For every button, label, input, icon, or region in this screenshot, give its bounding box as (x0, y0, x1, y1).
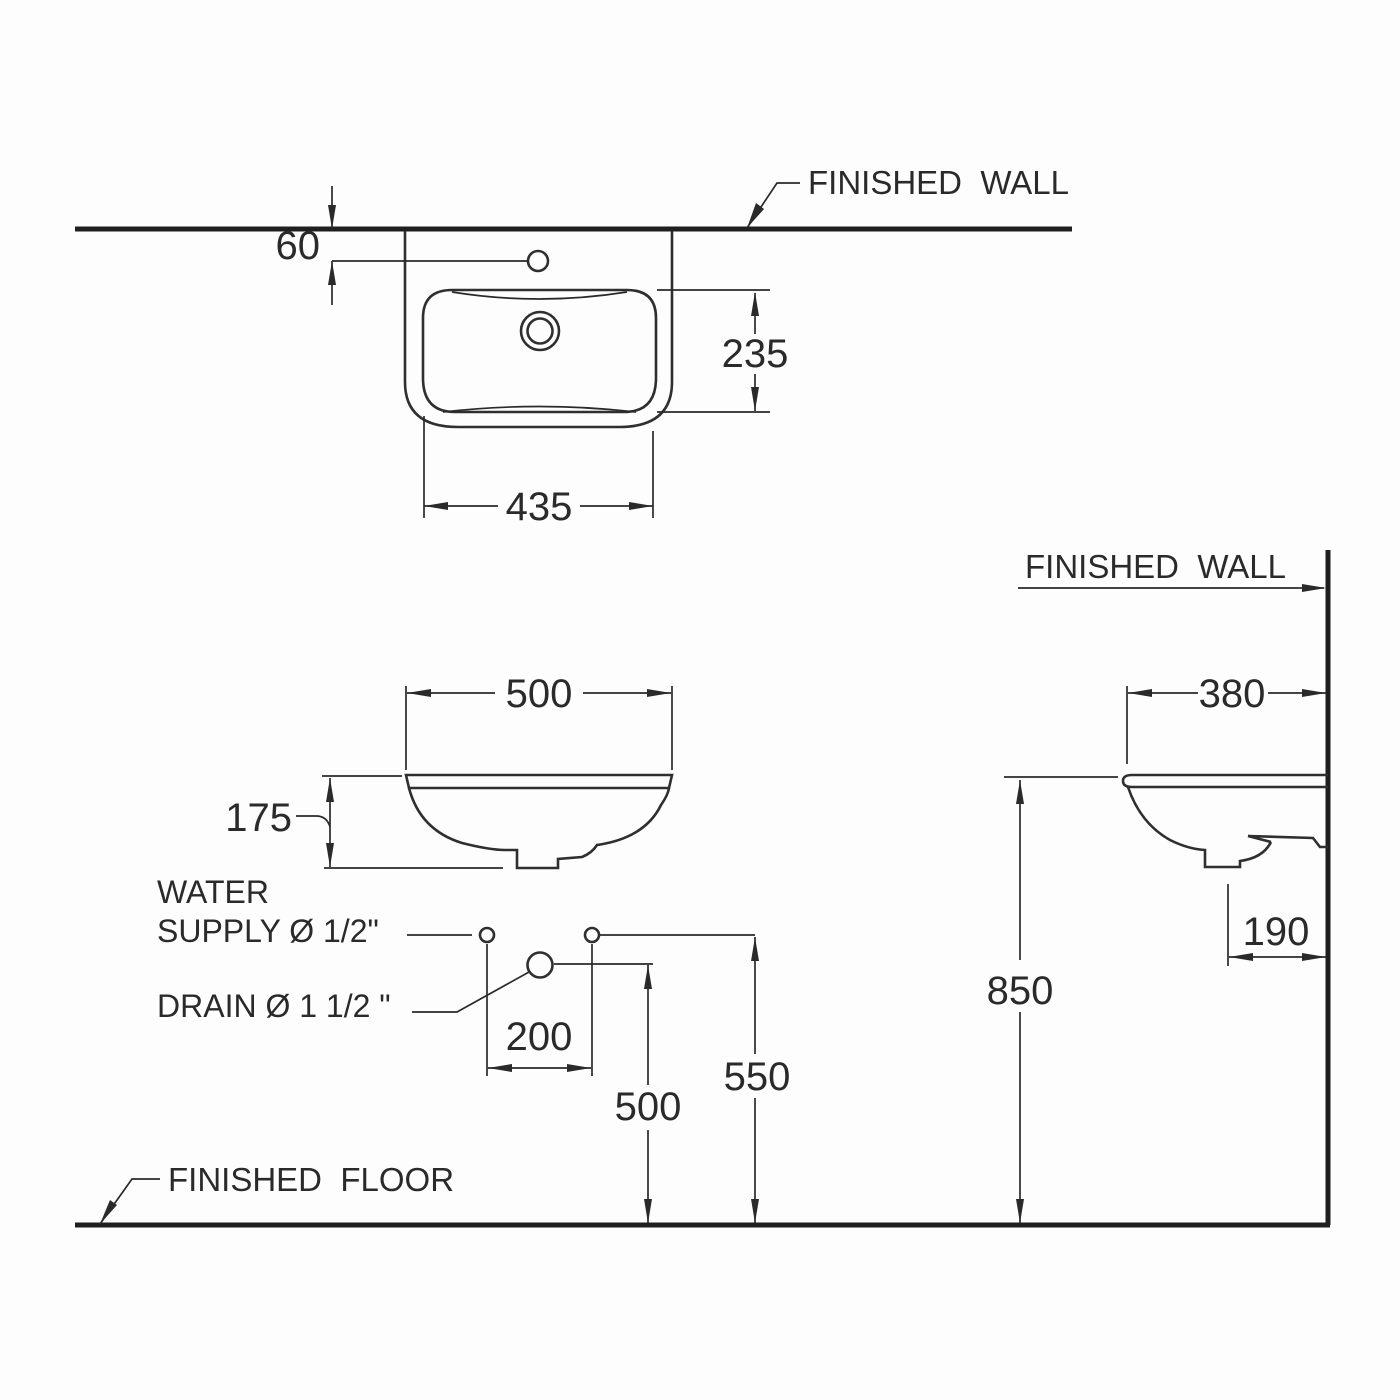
dim-190-arrow-left (1229, 953, 1253, 961)
dim-200-arrow-right (567, 1064, 591, 1072)
drain-hole-inner (528, 319, 553, 344)
finished-wall-top-leader (747, 183, 800, 228)
dim-500v-arrow-down (644, 1199, 652, 1223)
dim-435-text: 435 (506, 485, 573, 529)
dim-190-text: 190 (1243, 910, 1310, 954)
dim-500-text: 500 (506, 672, 573, 716)
dim-435-arrow-left (424, 502, 448, 510)
dim-235-arrow-down (751, 387, 759, 411)
dim-175-extensions (322, 776, 503, 868)
dim-500v-text: 500 (615, 1085, 682, 1129)
dim-850-arrow-down (1016, 1199, 1024, 1223)
basin-side-rim (1123, 775, 1328, 787)
dim-500-arrow-left (407, 689, 431, 697)
dim-550-arrow-down (751, 1199, 759, 1223)
dim-380-text: 380 (1199, 672, 1266, 716)
installation-diagram: FINISHED WALL 60 235 435 (0, 0, 1400, 1400)
supply-point-right (585, 928, 599, 942)
dim-200-arrow-left (488, 1064, 512, 1072)
dim-550-arrow-up (751, 937, 759, 961)
basin-plan-rim-arc-top (452, 292, 627, 299)
dim-850-arrow-up (1016, 780, 1024, 804)
finished-wall-side-label: FINISHED WALL (1025, 548, 1286, 585)
finished-wall-side-arrow (1302, 584, 1326, 592)
finished-floor-leader (100, 1179, 160, 1224)
dim-500v-arrow-up (644, 965, 652, 989)
dim-380-arrow-right (1302, 689, 1326, 697)
dim-550-text: 550 (724, 1055, 791, 1099)
drain-label: DRAIN Ø 1 1/2 " (157, 988, 391, 1024)
side-view: FINISHED WALL 380 850 190 (987, 548, 1328, 1225)
dim-60-arrow-down (328, 205, 336, 229)
dim-235-arrow-up (751, 292, 759, 316)
basin-front-rim (406, 775, 672, 788)
dim-200-text: 200 (506, 1015, 573, 1059)
dim-850-text: 850 (987, 969, 1054, 1013)
basin-side-outlet-shelf (1248, 836, 1328, 847)
dim-175-text: 175 (225, 796, 292, 840)
drain-point (528, 953, 553, 978)
water-supply-label-line2: SUPPLY Ø 1/2" (157, 913, 379, 949)
finished-floor-leader-arrow (100, 1200, 117, 1224)
dim-500-arrow-right (647, 689, 671, 697)
drain-leader (412, 972, 529, 1012)
basin-side-bowl (1128, 787, 1271, 867)
dim-60-text: 60 (276, 224, 321, 268)
dim-235-text: 235 (722, 332, 789, 376)
dim-60-arrow-up (328, 261, 336, 285)
dim-380-arrow-left (1128, 689, 1152, 697)
dim-190-arrow-right (1302, 953, 1326, 961)
drawing-canvas: FINISHED WALL 60 235 435 (0, 0, 1400, 1400)
supply-point-left (480, 928, 494, 942)
dim-175-arrow-down (326, 843, 334, 867)
basin-front-bowl (409, 788, 669, 868)
dim-435-arrow-right (629, 502, 653, 510)
floor: FINISHED FLOOR (75, 1161, 1330, 1225)
dim-175-leader (296, 816, 330, 827)
plan-view: FINISHED WALL 60 235 435 (75, 164, 1072, 529)
faucet-hole (528, 251, 548, 271)
water-supply-label-line1: WATER (157, 874, 269, 910)
finished-floor-label: FINISHED FLOOR (168, 1161, 454, 1198)
finished-wall-top-label: FINISHED WALL (808, 164, 1069, 201)
dim-175-arrow-up (326, 778, 334, 802)
front-view: 500 175 WATER SUPPLY Ø 1/2" DRAIN Ø 1 1/… (157, 672, 790, 1223)
